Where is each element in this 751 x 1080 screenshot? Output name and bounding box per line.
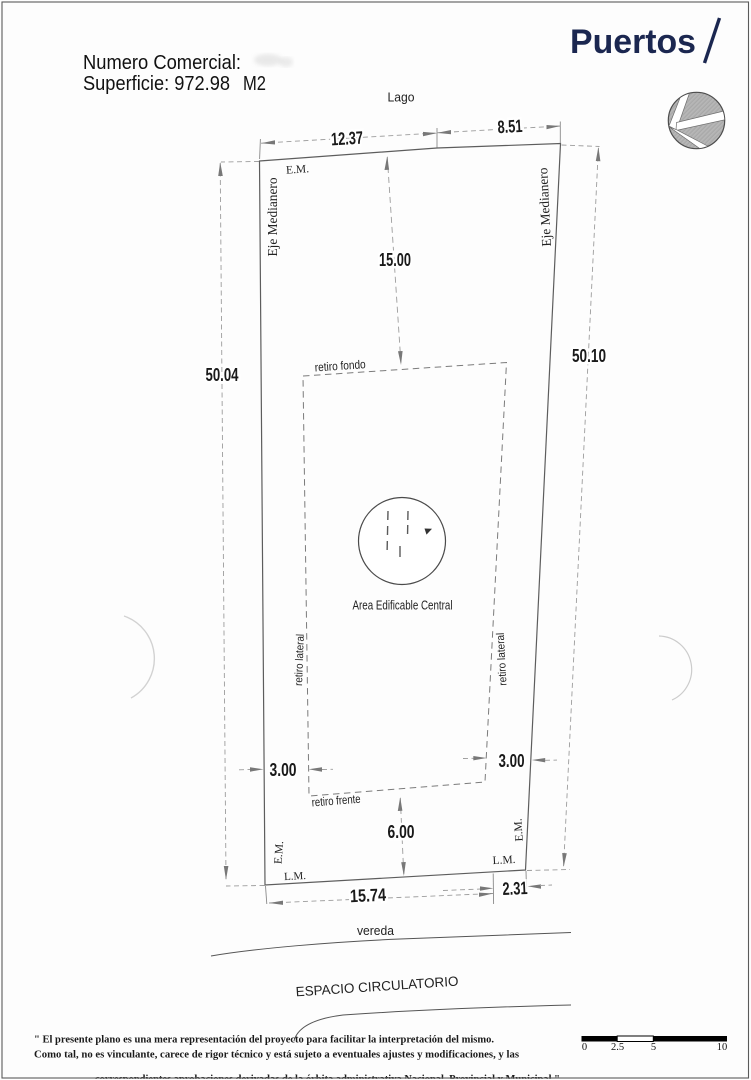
svg-text:E.M.: E.M. xyxy=(273,841,287,865)
svg-text:Lago: Lago xyxy=(388,91,415,105)
svg-text:2.5: 2.5 xyxy=(611,1042,624,1053)
svg-text:0: 0 xyxy=(582,1042,587,1053)
svg-text:Como tal, no es vinculante, ca: Como tal, no es vinculante, carece de ri… xyxy=(34,1050,519,1061)
svg-text:Superficie: 972.98: Superficie: 972.98 xyxy=(83,73,230,95)
svg-text:Eje Medianero: Eje Medianero xyxy=(265,177,280,256)
svg-text:12.37: 12.37 xyxy=(330,128,363,150)
svg-text:8.51: 8.51 xyxy=(497,116,523,137)
svg-text:3.00: 3.00 xyxy=(499,751,525,771)
svg-text:50.04: 50.04 xyxy=(206,365,239,385)
svg-text:E.M.: E.M. xyxy=(513,818,526,842)
svg-text:retiro lateral: retiro lateral xyxy=(293,634,307,686)
svg-text:3.00: 3.00 xyxy=(270,760,297,780)
svg-text:vereda: vereda xyxy=(357,923,395,938)
svg-text:E.M.: E.M. xyxy=(286,163,310,177)
svg-text:Puertos: Puertos xyxy=(570,23,696,61)
svg-text:2.31: 2.31 xyxy=(502,878,528,899)
svg-text:6.00: 6.00 xyxy=(388,822,415,842)
svg-text:5: 5 xyxy=(651,1042,656,1053)
svg-text:L.M.: L.M. xyxy=(492,854,516,867)
svg-text:15.00: 15.00 xyxy=(379,250,411,270)
svg-text:Area Edificable Central: Area Edificable Central xyxy=(353,599,453,613)
svg-text:50.10: 50.10 xyxy=(572,346,606,366)
svg-text:15.74: 15.74 xyxy=(350,885,387,907)
svg-text:M2: M2 xyxy=(243,73,266,95)
svg-text:10: 10 xyxy=(717,1042,728,1053)
svg-text:L.M.: L.M. xyxy=(284,870,307,883)
svg-text:Numero Comercial:: Numero Comercial: xyxy=(83,52,241,74)
svg-text:" El presente plano es una mer: " El presente plano es una mera represen… xyxy=(34,1035,494,1046)
